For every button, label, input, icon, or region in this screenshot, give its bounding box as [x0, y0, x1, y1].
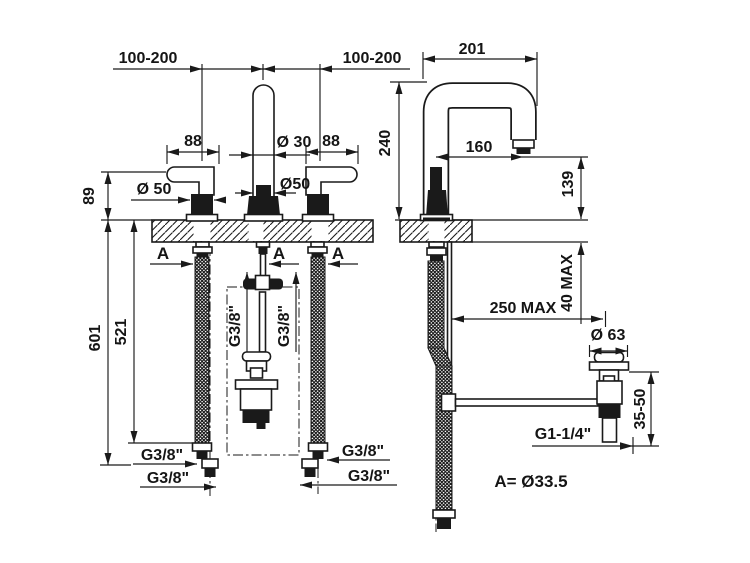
dim-waste-flange-diameter: Ø 63	[591, 327, 626, 344]
dim-handle-length-right: 88	[322, 133, 340, 150]
dim-waste-height-adjust: 35-50	[632, 388, 649, 429]
dim-center-spread-left: 100-200	[119, 50, 178, 67]
handle-right-lever	[306, 167, 357, 195]
dim-spout-base-diameter: Ø50	[280, 176, 310, 193]
front-view: 100-200 100-200 88 88 Ø 30 Ø 50 Ø50 89 6…	[81, 50, 410, 496]
supply-hose-right	[311, 257, 325, 443]
note-hole-diameter: A= Ø33.5	[494, 472, 567, 491]
supply-hose-side-upper	[428, 261, 444, 348]
handle-left-lever	[167, 167, 214, 195]
spout-side	[421, 96, 535, 221]
pop-up-rod	[260, 292, 266, 352]
hole-label-right: A	[332, 244, 344, 263]
dim-spout-height: 240	[377, 130, 394, 157]
dim-drop-total: 601	[87, 325, 104, 352]
rod-clamp	[442, 394, 456, 411]
label-hose-left-lower: G3/8"	[147, 470, 189, 487]
label-waste-thread: G1-1/4"	[535, 426, 592, 443]
dim-waste-distance-max: 250 MAX	[490, 300, 557, 317]
label-hose-left-upper: G3/8"	[141, 447, 183, 464]
technical-drawing-page: 100-200 100-200 88 88 Ø 30 Ø 50 Ø50 89 6…	[0, 0, 750, 563]
supply-hose-side-lower	[436, 366, 452, 512]
hole-label-left: A	[157, 244, 169, 263]
faucet-dimension-drawing: 100-200 100-200 88 88 Ø 30 Ø 50 Ø50 89 6…	[0, 0, 750, 563]
label-spout-inlet-left: G3/8"	[227, 305, 244, 347]
dim-handle-base-diameter: Ø 50	[137, 181, 172, 198]
dim-drop-to-hose-end: 521	[113, 319, 130, 346]
pop-up-linkage-rod	[456, 399, 599, 406]
dim-deck-thickness-max: 40 MAX	[559, 254, 576, 312]
handle-right	[302, 167, 357, 477]
dim-center-spread-right: 100-200	[343, 50, 402, 67]
dim-spout-diameter: Ø 30	[277, 134, 312, 151]
hole-label-center: A	[273, 244, 285, 263]
dim-handle-height: 89	[81, 187, 98, 205]
deck-side	[395, 220, 588, 242]
waste-tailpiece	[603, 418, 617, 442]
supply-hose-left	[195, 257, 209, 443]
dim-spout-depth: 201	[459, 41, 486, 58]
pop-up-drain-side	[590, 353, 629, 443]
label-hose-right-lower: G3/8"	[348, 468, 390, 485]
deck-front	[152, 220, 373, 242]
dim-spout-reach: 160	[466, 139, 493, 156]
label-spout-inlet-right: G3/8"	[276, 305, 293, 347]
label-hose-right-upper: G3/8"	[342, 443, 384, 460]
dim-outlet-height: 139	[560, 171, 577, 198]
side-view: 201 240 160 139 40 MAX 250 MAX Ø 63 35-5…	[377, 41, 659, 532]
aerator	[513, 140, 534, 148]
dim-handle-length-left: 88	[184, 133, 202, 150]
pop-up-drain-front	[236, 352, 278, 429]
